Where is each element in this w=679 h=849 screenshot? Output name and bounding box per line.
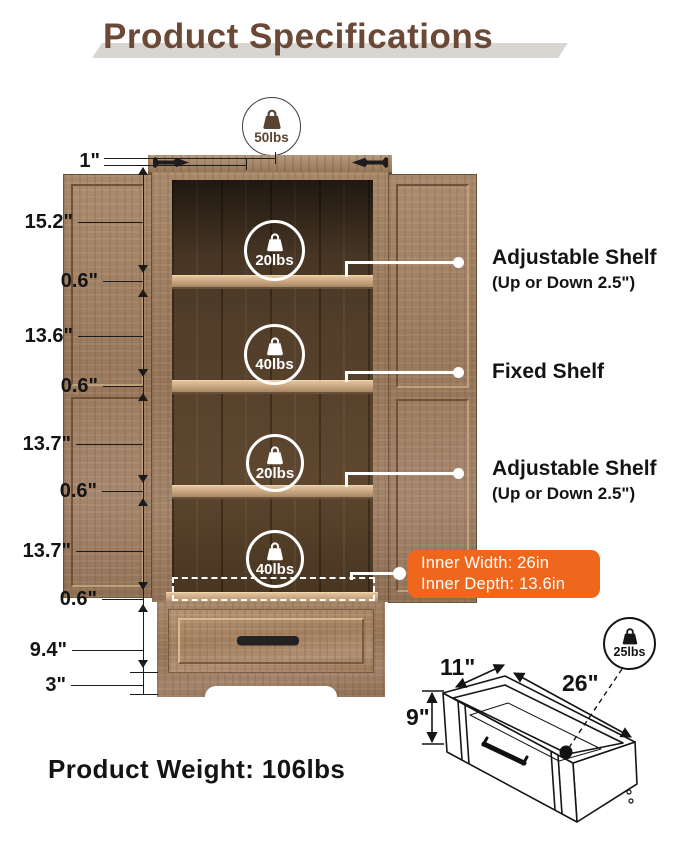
callout-dot: [453, 468, 464, 479]
callout-line: [345, 371, 457, 374]
inner-depth-text: Inner Depth: 13.6in: [421, 574, 600, 595]
dimension-label: 1": [30, 150, 100, 172]
shelf-2-capacity-label: 40lbs: [255, 357, 293, 372]
dimension-label: 13.7": [1, 433, 71, 455]
weight-icon: [264, 233, 286, 252]
dimension-label: 0.6": [27, 480, 97, 502]
dim-connector: [76, 444, 143, 445]
shelf-3-capacity-badge: 20lbs: [246, 434, 304, 492]
weight-icon: [264, 446, 286, 465]
cabinet-door-right: [388, 174, 477, 603]
door-right-upper-panel: [396, 184, 469, 388]
dim-tick: [275, 152, 276, 164]
base-arch-cutout: [205, 686, 337, 697]
callout-dot: [393, 567, 406, 580]
product-weight-text: Product Weight: 106lbs: [48, 754, 345, 785]
dim-tick: [130, 672, 158, 673]
drawer-handle: [237, 636, 299, 645]
weight-icon: [264, 542, 286, 561]
dim-arrow: [138, 289, 148, 297]
dim-connector: [78, 336, 143, 337]
page-title: Product Specifications: [103, 17, 493, 57]
dim-line-1in-b: [104, 165, 247, 166]
dimension-label: 3": [0, 674, 66, 696]
weight-icon: [620, 628, 640, 645]
shelf-2-capacity-badge: 40lbs: [244, 324, 305, 385]
dim-connector: [102, 491, 143, 492]
top-capacity-label: 50lbs: [254, 131, 289, 145]
dim-connector: [102, 599, 143, 600]
dimension-label: 9.4": [0, 639, 67, 661]
dim-arrow: [138, 393, 148, 401]
callout-dot: [453, 367, 464, 378]
dimension-label: 0.6": [28, 375, 98, 397]
dimension-label: 0.6": [28, 270, 98, 292]
capacity-pointer-dot: [560, 746, 573, 759]
callout-title: Fixed Shelf: [492, 360, 604, 384]
inner-size-badge: Inner Width: 26in Inner Depth: 13.6in: [408, 550, 600, 598]
dim-line-1in-a: [104, 158, 276, 159]
drawer-height-label: 9": [406, 704, 430, 730]
shelf-1-capacity-label: 20lbs: [255, 253, 293, 268]
dimension-label: 13.6": [3, 325, 73, 347]
callout-subtitle: (Up or Down 2.5"): [492, 484, 635, 504]
dim-connector: [78, 222, 143, 223]
dim-connector: [103, 386, 143, 387]
callout-line: [350, 572, 398, 575]
drawer-depth-label: 11": [440, 654, 475, 680]
shelf-5-capacity-label: 40lbs: [256, 562, 294, 577]
dim-arrow: [138, 498, 148, 506]
drawer-width-label: 26": [562, 670, 599, 696]
dim-connector: [71, 685, 143, 686]
shelf-1-capacity-badge: 20lbs: [244, 220, 305, 281]
dim-arrow: [138, 167, 148, 175]
shelf-4-capacity-label: 20lbs: [256, 466, 294, 481]
product-spec-diagram: Product Specifications 50lbs 20lbs 40lbs: [0, 0, 679, 849]
drawer-diagram: 11" 26" 9": [404, 645, 676, 845]
callout-subtitle: (Up or Down 2.5"): [492, 273, 635, 293]
weight-icon: [260, 109, 284, 130]
dim-arrow: [138, 369, 148, 377]
dim-arrow: [138, 475, 148, 483]
dim-arrow: [138, 582, 148, 590]
callout-line: [345, 261, 457, 264]
dim-tick: [130, 694, 158, 695]
top-capacity-badge: 50lbs: [242, 97, 301, 156]
dimension-vertical-line: [143, 168, 144, 695]
inner-width-text: Inner Width: 26in: [421, 553, 600, 574]
callout-title: Adjustable Shelf: [492, 246, 657, 270]
callout-line: [345, 472, 457, 475]
inner-size-dashed-outline: [172, 577, 375, 601]
drawer-section: [157, 602, 385, 697]
dim-tick: [246, 158, 247, 170]
dim-connector: [76, 551, 143, 552]
weight-icon: [264, 337, 286, 356]
dim-connector: [72, 650, 143, 651]
dim-connector: [103, 281, 143, 282]
callout-dot: [453, 257, 464, 268]
dim-arrow: [138, 660, 148, 668]
dimension-label: 0.6": [27, 588, 97, 610]
dimension-label: 13.7": [1, 540, 71, 562]
dimension-label: 15.2": [3, 211, 73, 233]
callout-title: Adjustable Shelf: [492, 457, 657, 481]
dim-arrow: [138, 604, 148, 612]
dim-arrow: [138, 265, 148, 273]
